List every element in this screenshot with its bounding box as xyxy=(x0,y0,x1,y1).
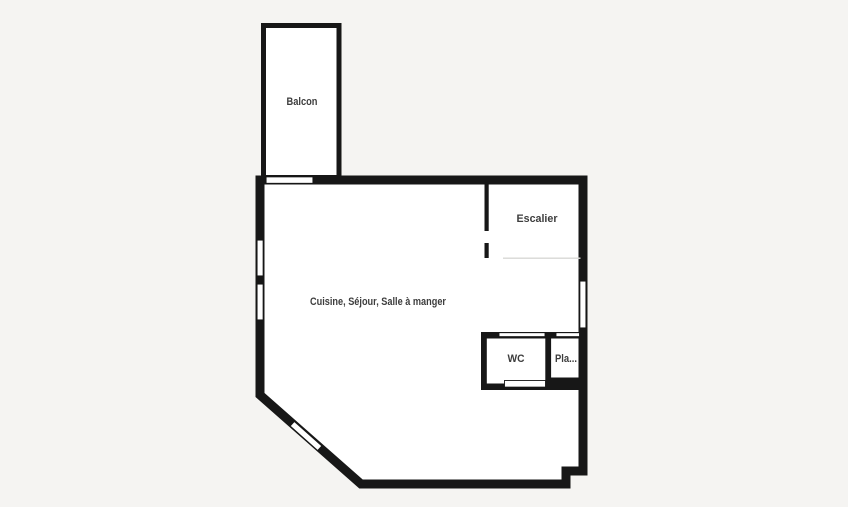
wc-bottom-door-opening xyxy=(505,381,546,388)
room-label-living: Cuisine, Séjour, Salle à manger xyxy=(310,296,447,308)
room-label-staircase: Escalier xyxy=(517,213,559,225)
window-left-lower xyxy=(257,284,263,320)
window-top-under-balcony xyxy=(266,177,313,184)
wc-closet-divider-wall xyxy=(545,332,551,390)
window-left-upper xyxy=(257,240,263,276)
window-right xyxy=(580,281,586,328)
staircase-partition-wall-lower xyxy=(485,243,489,258)
wc-top-door-opening xyxy=(499,333,545,337)
wc-left-wall xyxy=(481,332,487,390)
closet-bottom-wall xyxy=(551,378,587,391)
room-label-balcony: Balcon xyxy=(287,96,318,108)
room-label-closet: Pla... xyxy=(555,353,577,365)
floor-plan-drawing: Balcon Escalier Cuisine, Séjour, Salle à… xyxy=(0,0,848,507)
floor-plan-canvas: Balcon Escalier Cuisine, Séjour, Salle à… xyxy=(0,0,848,507)
room-label-wc: WC xyxy=(508,353,525,365)
closet-top-door-opening xyxy=(556,333,580,337)
staircase-partition-wall-upper xyxy=(485,184,489,231)
staircase-boundary-line xyxy=(503,258,581,259)
